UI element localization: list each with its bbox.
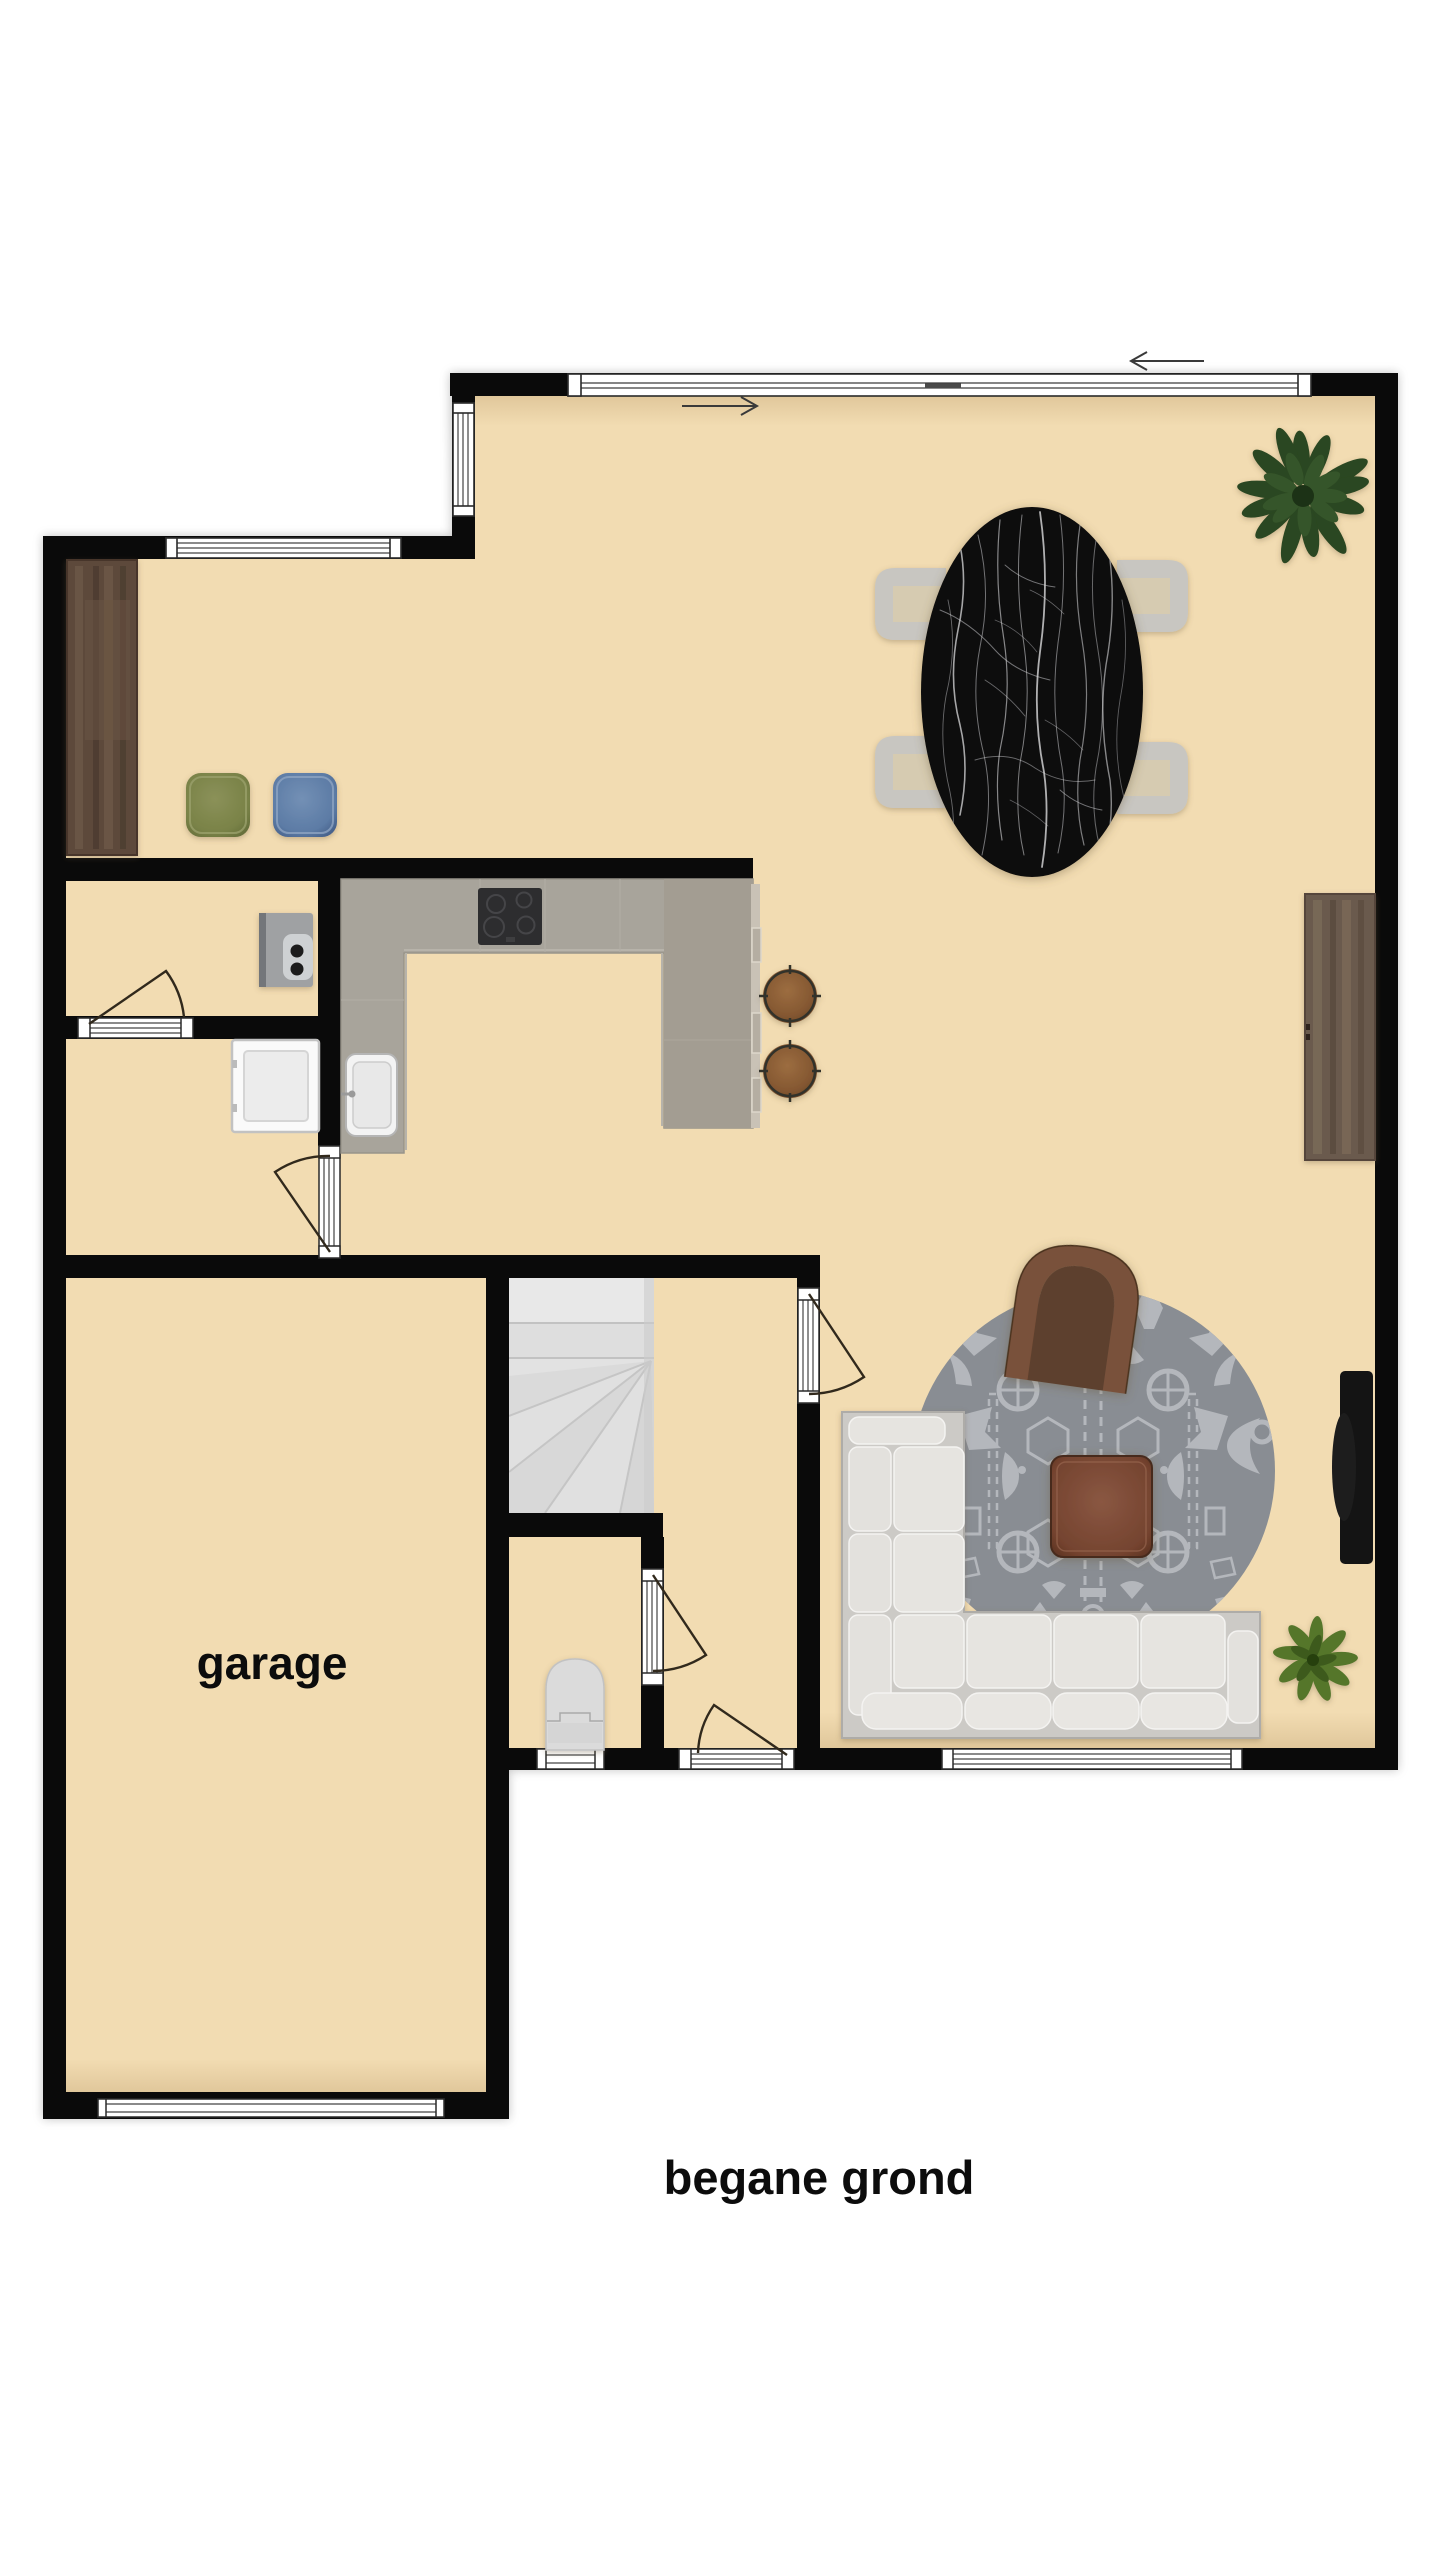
svg-text:begane grond: begane grond — [664, 2151, 975, 2204]
svg-text:garage: garage — [197, 1637, 348, 1689]
